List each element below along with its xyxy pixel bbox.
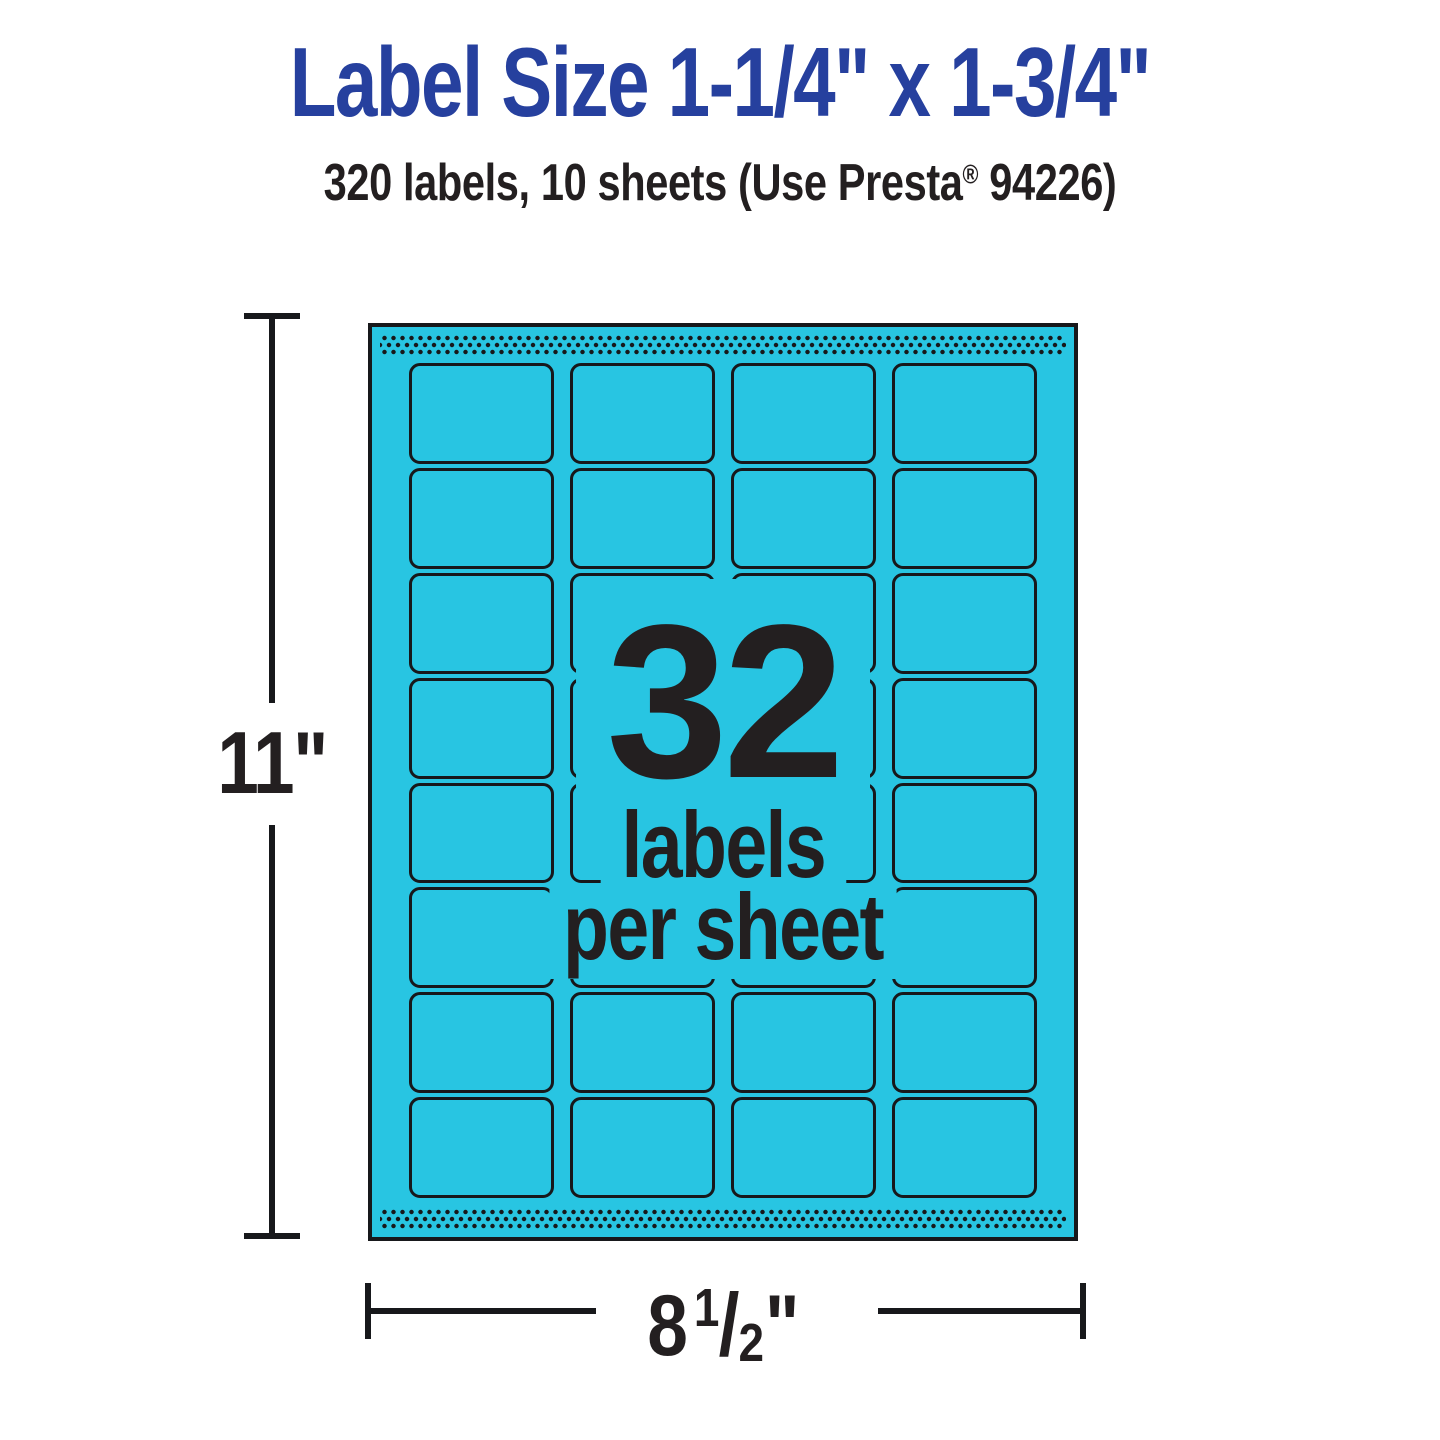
perforation-strip-bottom [380, 1208, 1066, 1230]
subtitle-prefix: 320 labels, 10 sheets (Use Presta [324, 154, 963, 212]
label-cell [892, 468, 1037, 569]
height-dimension-line-lower [269, 825, 275, 1236]
height-dimension-cap-bottom [244, 1233, 300, 1239]
label-cell [731, 363, 876, 464]
width-dimension-line-right [878, 1308, 1080, 1314]
label-cell [570, 992, 715, 1093]
label-count-caption-line1: labels [600, 805, 845, 885]
width-dimension-label: 81/2" [596, 1262, 851, 1389]
label-cell [892, 1097, 1037, 1198]
label-cell [409, 992, 554, 1093]
label-cell [892, 992, 1037, 1093]
registered-trademark-symbol: ® [963, 159, 979, 189]
label-cell [570, 1097, 715, 1198]
label-cell [892, 363, 1037, 464]
label-cell [409, 468, 554, 569]
perforation-strip-top [380, 334, 1066, 356]
width-fraction-numerator: 1 [694, 1278, 719, 1338]
label-cell [409, 1097, 554, 1198]
width-whole-number: 8 [647, 1278, 687, 1374]
page-title: Label Size 1-1/4" x 1-3/4" [158, 26, 1281, 139]
height-dimension-line-upper [269, 319, 275, 703]
label-count-caption-line2: per sheet [549, 885, 896, 979]
height-dimension-label: 11" [204, 718, 340, 808]
label-sheet: 32 labels per sheet [368, 323, 1078, 1241]
page-subtitle: 320 labels, 10 sheets (Use Presta® 94226… [144, 153, 1296, 213]
label-cell [731, 468, 876, 569]
labels-per-sheet-callout: 32 labels per sheet [506, 579, 940, 979]
label-cell [570, 468, 715, 569]
width-fraction-denominator: 2 [739, 1313, 764, 1373]
label-cell [731, 1097, 876, 1198]
label-cell [409, 363, 554, 464]
label-cell [570, 363, 715, 464]
width-dimension-line-left [371, 1308, 596, 1314]
width-fraction-slash: / [719, 1275, 739, 1374]
subtitle-suffix: 94226) [978, 154, 1116, 212]
label-spec-diagram: { "page": { "title": "Label Size 1-1/4\"… [0, 0, 1440, 1440]
width-inch-mark: " [765, 1278, 799, 1374]
label-cell [731, 992, 876, 1093]
label-count: 32 [576, 579, 870, 805]
width-dimension-cap-right [1080, 1283, 1086, 1339]
